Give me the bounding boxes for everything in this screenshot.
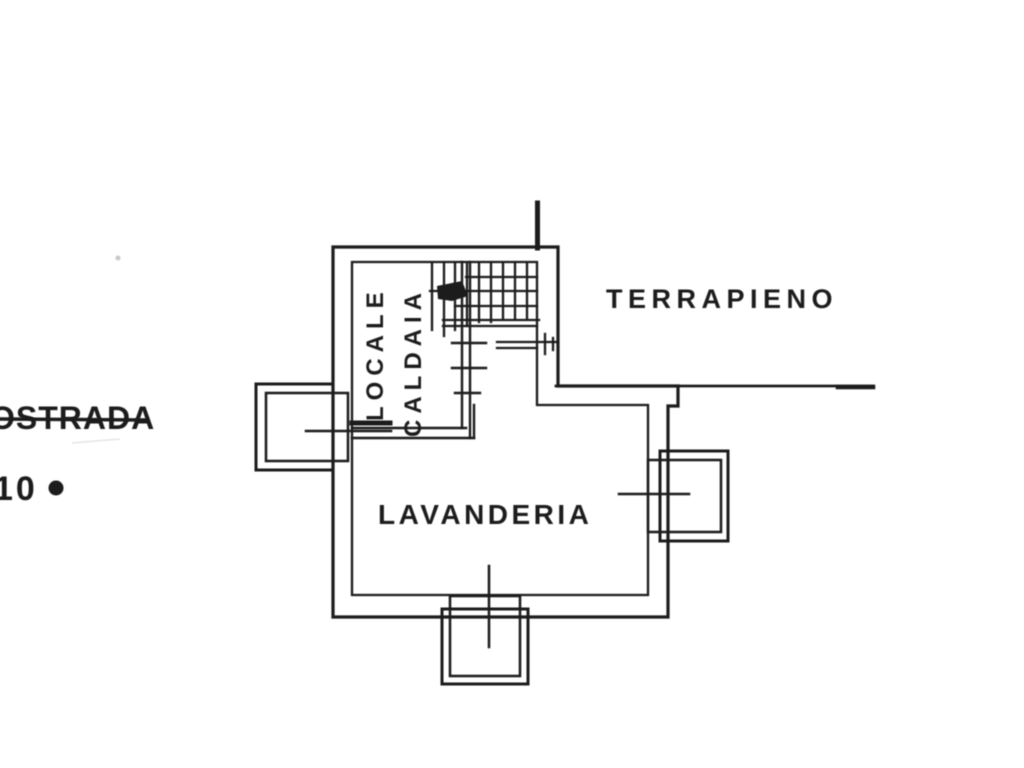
road-label-ostrada: OSTRADA xyxy=(0,400,155,436)
area-label-terrapieno: TERRAPIENO xyxy=(606,284,838,314)
scan-speck xyxy=(116,256,121,261)
stair-direction-mark xyxy=(437,281,468,301)
window-bay-bottom xyxy=(442,566,528,684)
floor-plan-drawing: TERRAPIENO LAVANDERIA LOCALE CALDAIA OST… xyxy=(0,0,1024,768)
scan-streak xyxy=(72,439,120,443)
location-dot xyxy=(49,481,64,496)
scanned-floor-plan-page: TERRAPIENO LAVANDERIA LOCALE CALDAIA OST… xyxy=(0,0,1024,768)
road-number-label: 10 xyxy=(0,470,38,508)
room-label-lavanderia: LAVANDERIA xyxy=(378,499,592,530)
room-label-locale: LOCALE xyxy=(362,286,389,421)
room-label-caldaia: CALDAIA xyxy=(400,287,427,437)
staircase-hatching xyxy=(430,264,558,354)
window-bay-right xyxy=(619,451,728,541)
